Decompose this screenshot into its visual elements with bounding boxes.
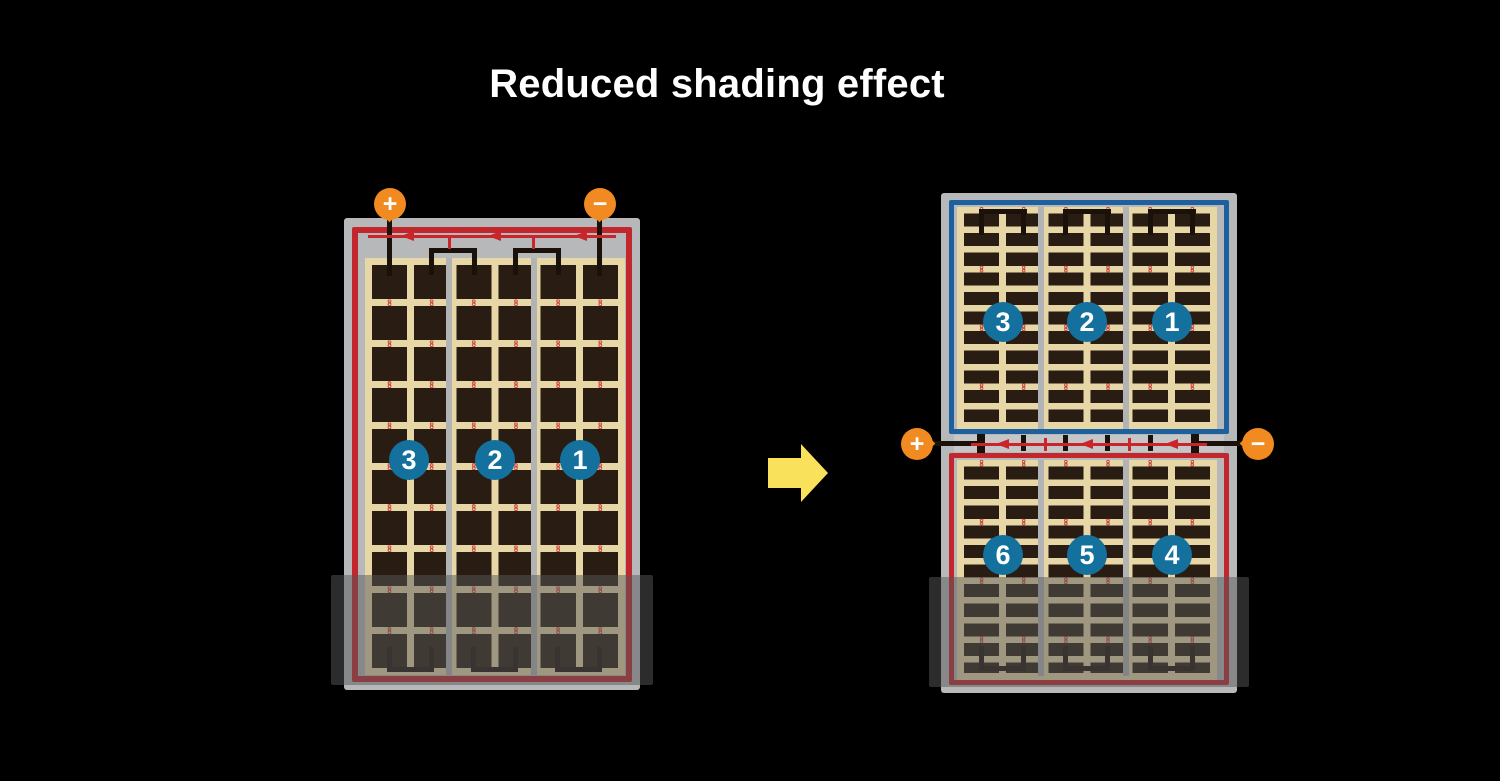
negative-terminal: − [584, 188, 616, 220]
column-bridge-leg [556, 248, 561, 275]
negative-terminal: − [1242, 428, 1274, 460]
page-title: Reduced shading effect [0, 62, 1434, 107]
section-number-badge: 1 [560, 440, 600, 480]
section-number-badge: 3 [983, 302, 1023, 342]
diode-tap-tick [532, 236, 535, 249]
column-bridge-wire [1148, 209, 1196, 214]
column-bridge-leg [979, 209, 984, 235]
column-bridge-wire [1063, 209, 1111, 214]
section-number-badge: 2 [1067, 302, 1107, 342]
column-bridge-leg [1063, 209, 1068, 235]
section-number-badge: 1 [1152, 302, 1192, 342]
section-number-badge: 3 [389, 440, 429, 480]
right-panel-split-module: 3 2 1 6 5 4 + − [941, 193, 1237, 693]
section-number-badge: 2 [475, 440, 515, 480]
positive-terminal: + [901, 428, 933, 460]
diode-tap-tick [1128, 438, 1131, 451]
column-bridge-leg [1105, 209, 1110, 235]
diagram-canvas: Reduced shading effect 3 2 1 [0, 0, 1500, 781]
section-number-badge: 4 [1152, 535, 1192, 575]
minus-icon: − [584, 188, 616, 220]
diode-tap-tick [1044, 438, 1047, 451]
section-number-badge: 5 [1067, 535, 1107, 575]
bypass-diode-arrow-icon [401, 231, 414, 241]
shading-overlay [331, 575, 653, 685]
diode-tap-tick [448, 236, 451, 249]
plus-icon: + [901, 428, 933, 460]
section-number-badge: 6 [983, 535, 1023, 575]
column-bridge-leg [472, 248, 477, 275]
column-bridge-leg [1190, 209, 1195, 235]
bypass-diode-arrow-icon [488, 231, 501, 241]
column-bridge-leg [513, 248, 518, 275]
column-bridge-wire [429, 248, 477, 253]
bypass-diode-arrow-icon [1165, 439, 1178, 449]
positive-terminal: + [374, 188, 406, 220]
column-bridge-leg [1021, 209, 1026, 235]
bypass-diode-arrow-icon [996, 439, 1009, 449]
left-panel-standard-module: 3 2 1 + − [344, 218, 640, 690]
minus-icon: − [1242, 428, 1274, 460]
column-bridge-wire [979, 209, 1027, 214]
column-bridge-leg [1148, 209, 1153, 235]
shading-overlay [929, 577, 1249, 687]
bypass-diode-arrow-icon [574, 231, 587, 241]
title-wrap: Reduced shading effect [0, 62, 1434, 107]
transition-arrow-icon [768, 444, 828, 502]
column-bridge-wire [513, 248, 561, 253]
bypass-diode-arrow-icon [1080, 439, 1093, 449]
column-bridge-leg [429, 248, 434, 275]
plus-icon: + [374, 188, 406, 220]
